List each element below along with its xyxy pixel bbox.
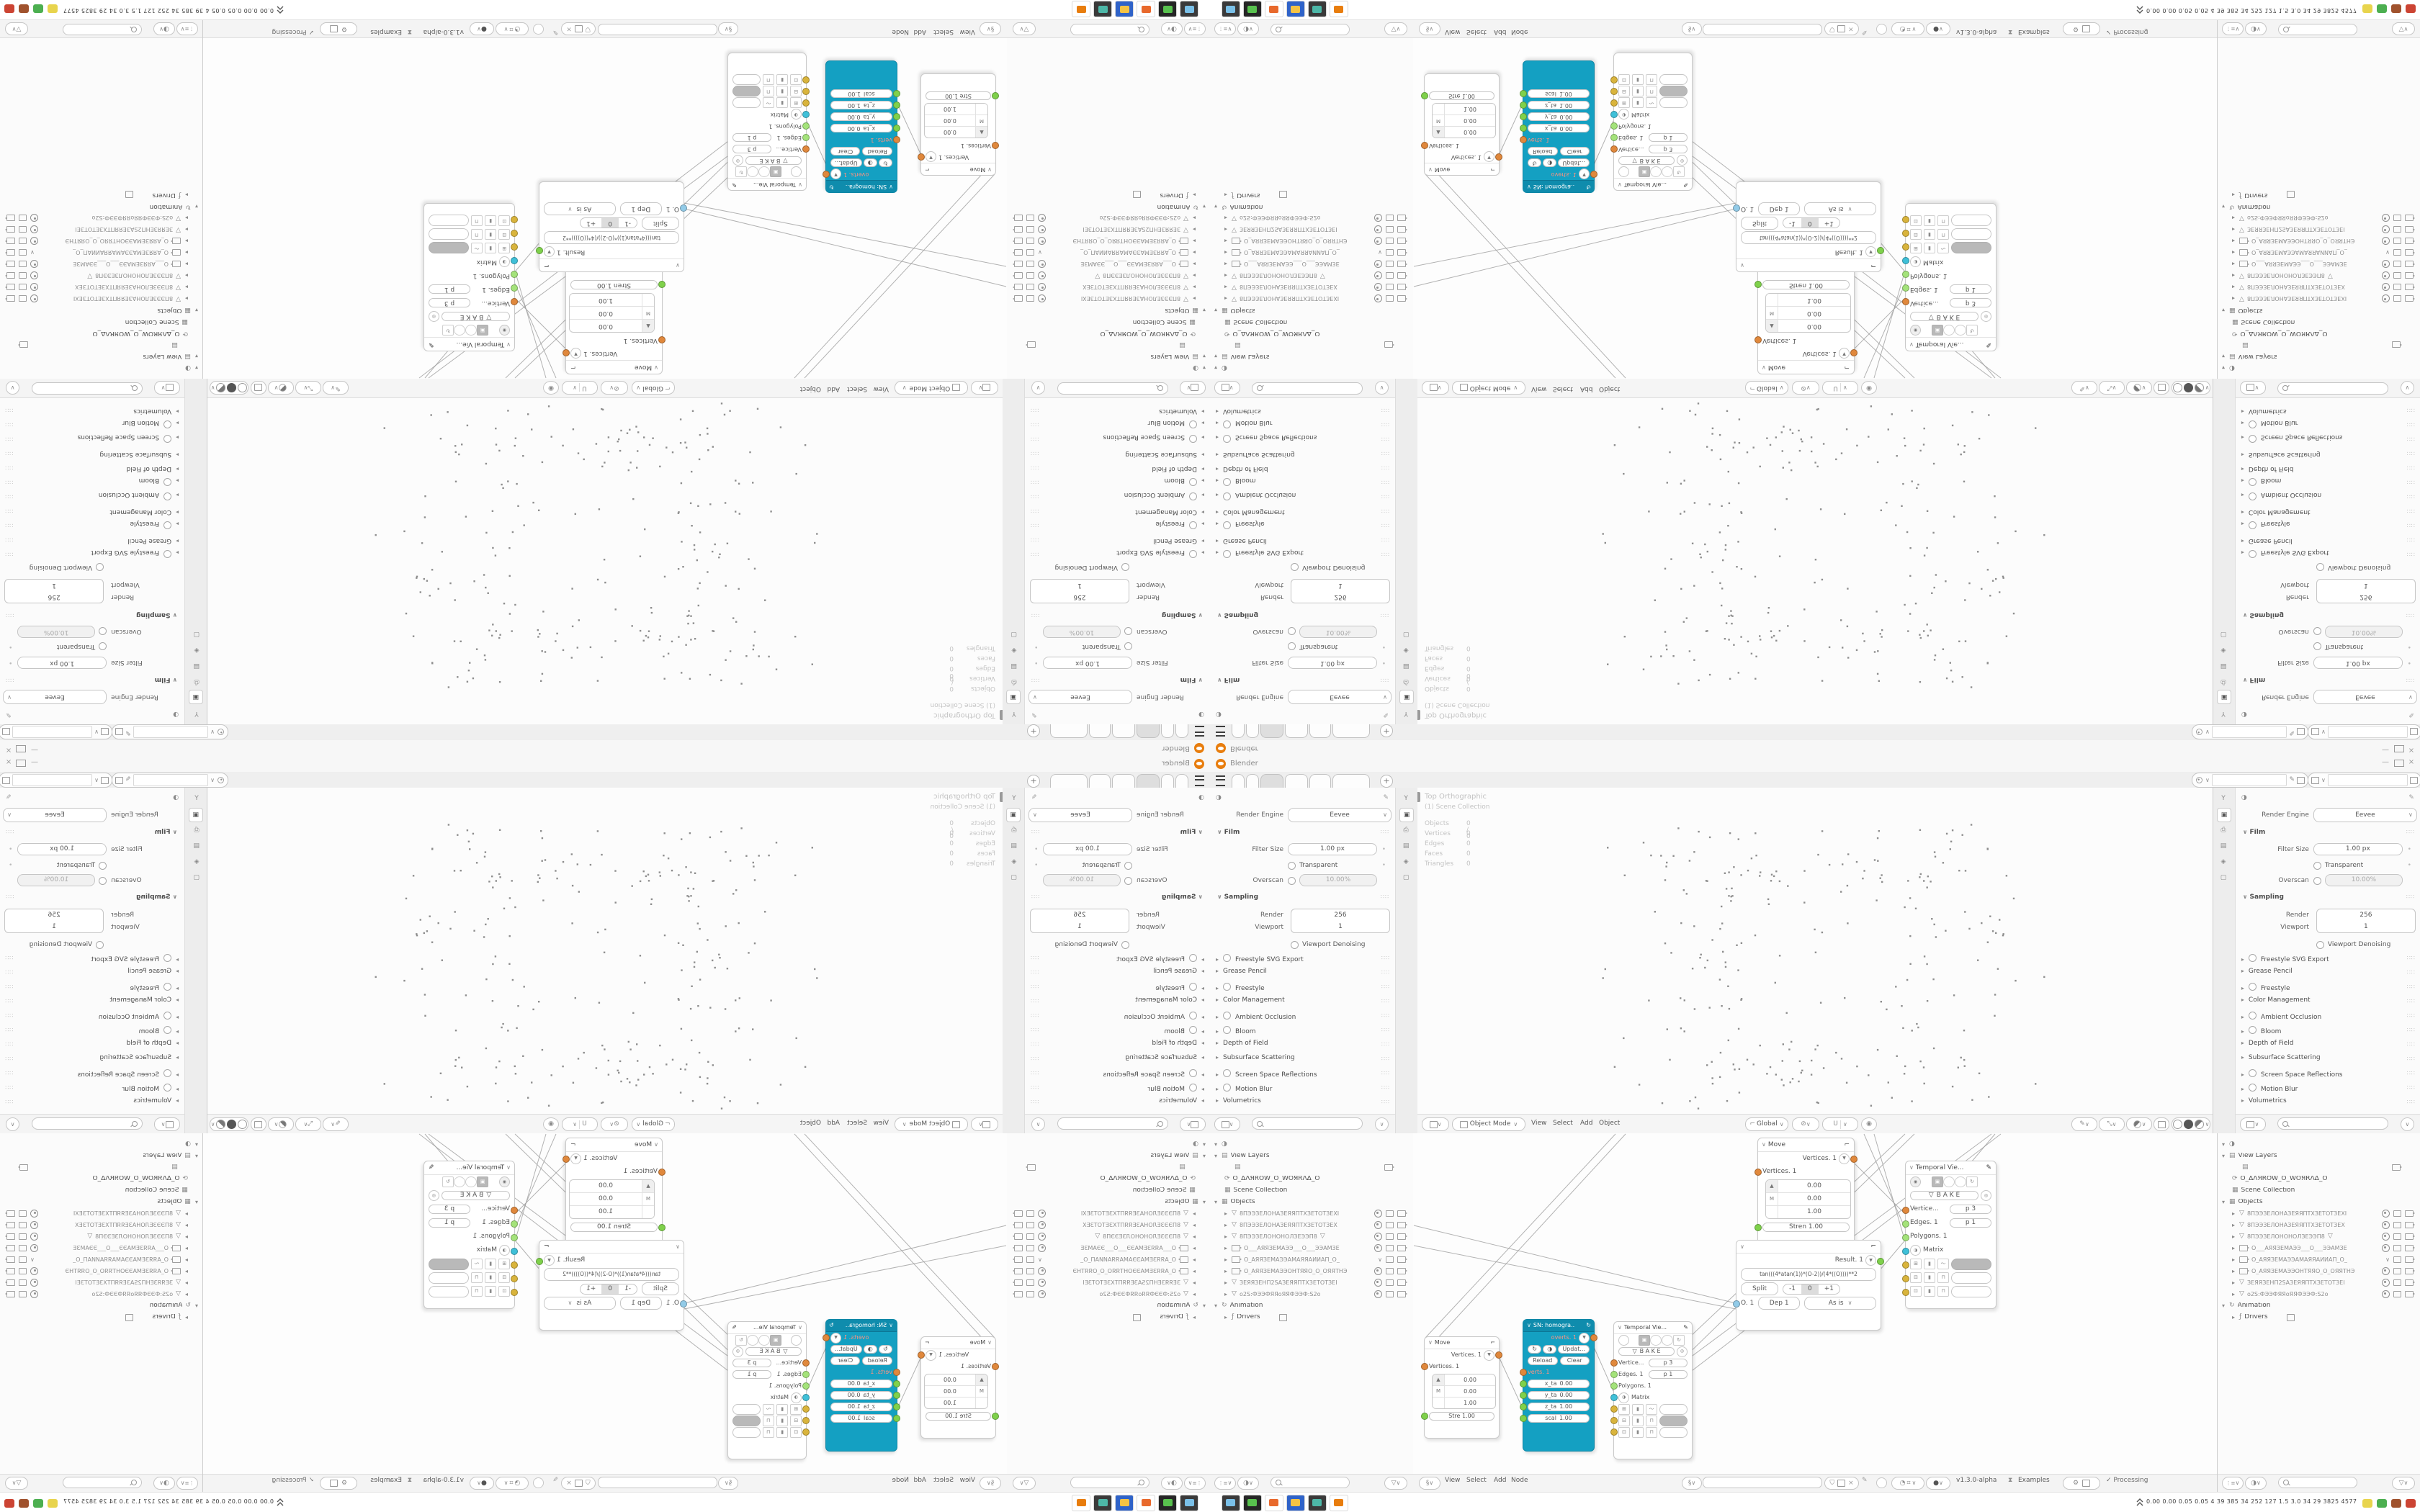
filter-size-field[interactable]: 1.00 px xyxy=(1043,843,1132,855)
outliner-objects-collection[interactable]: ▾▦Objects xyxy=(1007,305,1210,315)
render-disable-toggle[interactable] xyxy=(2405,1279,2414,1286)
outliner-scene[interactable]: ⟳O_ΔΛЯROW_O_WOЯRΛΔ_O xyxy=(2218,328,2420,338)
section-checkbox[interactable] xyxy=(163,1026,171,1034)
matrix-widget[interactable]: ▲0.00 M0.00 1.00 xyxy=(569,293,655,333)
render-disable-toggle[interactable] xyxy=(6,1233,15,1240)
section-checkbox[interactable] xyxy=(1189,435,1197,443)
viewport-disable-toggle[interactable] xyxy=(2393,1245,2401,1251)
viewport-disable-toggle[interactable] xyxy=(1386,1210,1394,1217)
rebake-button[interactable]: ◎ xyxy=(1981,1190,1991,1201)
viewport-disable-toggle[interactable] xyxy=(1026,1256,1034,1263)
render-disable-toggle[interactable] xyxy=(2405,1268,2414,1274)
taskbar-app-icon[interactable] xyxy=(2406,4,2416,13)
node-sn-homogra[interactable]: ∨SN: homogra..↻ overts. 1▼ ↻ ◑ Updat... … xyxy=(1523,1319,1595,1452)
workspace-tab[interactable] xyxy=(1089,774,1111,788)
overscan-field[interactable]: 10.00% xyxy=(2325,874,2403,886)
edit-icon-button[interactable]: ◑ xyxy=(1543,158,1556,167)
properties-tab-icon[interactable]: ▣ xyxy=(1399,690,1414,704)
viewport-disable-toggle[interactable] xyxy=(1386,272,1394,279)
hide-toggle[interactable] xyxy=(1038,283,1046,291)
id-browser-1[interactable]: ∨ ✎ xyxy=(112,724,228,739)
properties-tab-icon[interactable]: ▢ xyxy=(2217,871,2230,884)
outliner-object-row[interactable]: ▸▽ЗЕЯЯЗЕНП2SАЗЕЯЯПТХЗЕТОТЗЕІ xyxy=(0,224,202,235)
render-disable-toggle[interactable] xyxy=(1014,1233,1023,1240)
viewport-disable-toggle[interactable] xyxy=(19,1256,27,1263)
split-depth-segment[interactable]: -10+1 xyxy=(580,1284,637,1295)
outliner-object-row[interactable]: ▸▽ЗЕЯЯЗЕНП2SАЗЕЯЯПТХЗЕТОТЗЕІ xyxy=(0,1277,202,1288)
outliner-object-row[interactable]: ▸О___АЯЯЗЕМАЭЭ___О___ЭЭАМЗЕ xyxy=(2218,258,2420,269)
props-collapsed-section[interactable]: ▸Subsurface Scattering∷∷ xyxy=(1024,444,1210,457)
reload-button[interactable]: Reload xyxy=(863,147,893,156)
proportional-edit-button[interactable]: ◉ xyxy=(543,1117,559,1131)
render-disable-toggle[interactable] xyxy=(6,249,15,256)
hide-toggle[interactable] xyxy=(1038,214,1046,222)
section-checkbox[interactable] xyxy=(1189,550,1197,558)
section-checkbox[interactable] xyxy=(1223,954,1231,962)
sverchok-buttons[interactable]: ⚙ xyxy=(320,22,357,35)
id-browser-2[interactable]: ∨ xyxy=(0,724,112,739)
hide-toggle[interactable] xyxy=(30,1267,38,1275)
hide-toggle[interactable] xyxy=(2382,294,2390,302)
filter-size-field[interactable]: 1.00 px xyxy=(2313,657,2403,669)
section-checkbox[interactable] xyxy=(1223,1084,1231,1092)
viewport-disable-toggle[interactable] xyxy=(2393,1233,2401,1240)
render-disable-toggle[interactable] xyxy=(1397,1210,1406,1217)
filter-id-button[interactable]: ◑∨ xyxy=(2245,22,2267,35)
render-disable-toggle[interactable] xyxy=(2405,1245,2414,1251)
outliner-object-row[interactable]: ▸О_АЯЯЗЕМАЭЭОНТЯЯО_О_ОЯЯТНЭ xyxy=(1210,1266,1413,1277)
display-toggle-group[interactable]: ▣↻ xyxy=(735,167,781,178)
overscan-checkbox[interactable] xyxy=(99,877,107,885)
outliner-objects-collection[interactable]: ▾▦Objects xyxy=(1210,1197,1413,1207)
hide-toggle[interactable]: ∨ xyxy=(2385,1257,2390,1263)
hide-toggle[interactable] xyxy=(2382,1233,2390,1241)
sampling-section-header[interactable]: ∨ Sampling xyxy=(136,611,177,618)
props-collapsed-section[interactable]: ▸Volumetrics∷∷ xyxy=(0,401,184,414)
viewport-disable-toggle[interactable] xyxy=(1026,1210,1034,1217)
overlays-toggle-button[interactable]: ∨ xyxy=(2126,381,2152,395)
denoising-checkbox[interactable] xyxy=(1121,564,1129,572)
rebake-button[interactable]: ◎ xyxy=(732,156,743,166)
outliner-object-row[interactable]: ▸▽8ПЭЭЗЕЛОНАЗЕЯЯПТХЗЕТОТЗЕХІ xyxy=(1007,1208,1210,1219)
properties-tab-icon[interactable]: Y xyxy=(1008,792,1021,805)
outliner-filter-button[interactable]: ▽∨ xyxy=(1384,22,1407,35)
hide-toggle[interactable] xyxy=(2382,1279,2390,1287)
hide-toggle[interactable] xyxy=(1038,237,1046,245)
shading-mode-group[interactable]: ∨ xyxy=(2172,1117,2210,1131)
outliner-scene[interactable]: ⟳O_ΔΛЯROW_O_WOЯRΛΔ_O xyxy=(2218,1174,2420,1184)
taskbar-app-icon[interactable] xyxy=(33,4,43,13)
props-collapsed-section[interactable]: ▸Motion Blur∷∷ xyxy=(0,415,184,428)
hide-toggle[interactable] xyxy=(30,1290,38,1298)
node-tree-name-field[interactable] xyxy=(1703,24,1822,35)
gimp-64-icon[interactable] xyxy=(1115,1495,1134,1511)
render-disable-toggle[interactable] xyxy=(6,238,15,244)
sampling-render-field[interactable]: 256 xyxy=(1291,590,1390,603)
node-temporal-viewer[interactable]: ∨Temporal Vie...✎ ◉ ▣↻ ▽B A K E◎ Vertice… xyxy=(1905,1161,1996,1309)
transparent-checkbox[interactable] xyxy=(99,862,107,870)
outliner-filter-button[interactable]: ▽∨ xyxy=(1013,1477,1036,1490)
viewport-disable-toggle[interactable] xyxy=(19,1210,27,1217)
render-engine-dropdown[interactable]: Eevee∨ xyxy=(1028,808,1132,822)
node-temporal-viewer[interactable]: ∨Temporal Vie...✎ ▣↻ ▽B A K E◎ Vertice..… xyxy=(727,53,807,191)
viewport-disable-toggle[interactable] xyxy=(1386,1291,1394,1297)
shading-mode-group[interactable]: ∨ xyxy=(210,381,248,395)
render-disable-toggle[interactable] xyxy=(1397,238,1406,244)
hide-toggle[interactable] xyxy=(30,1210,38,1218)
matrix-out-row[interactable]: ⊟▮⊓ xyxy=(728,86,806,97)
props-collapsed-section[interactable]: ▸Grease Pencil∷∷ xyxy=(0,531,184,544)
render-disable-toggle[interactable] xyxy=(1014,1268,1023,1274)
props-collapsed-section[interactable]: ▸Ambient Occlusion∷∷ xyxy=(2236,487,2420,500)
editor-type-button[interactable]: ∨ xyxy=(1422,381,1449,395)
node-move[interactable]: ∨Move⌐ Vertices. 1▼ Vertices. 1 ▲0.00 M0… xyxy=(1424,1336,1500,1439)
overscan-field[interactable]: 10.00% xyxy=(1299,874,1377,886)
eye-toggle[interactable]: ◉ xyxy=(1910,325,1921,336)
viewport-disable-toggle[interactable] xyxy=(19,238,27,244)
hide-toggle[interactable] xyxy=(1374,294,1382,302)
copy-icon[interactable] xyxy=(115,777,123,784)
outliner-object-row[interactable]: ▸О_АЯЯЗЕМАЭЭАМАЯЯАИИАП_О_∨ xyxy=(0,247,202,258)
props-collapsed-section[interactable]: ▸Freestyle SVG Export∷∷ xyxy=(1024,954,1210,967)
id-name-field[interactable] xyxy=(2212,774,2287,786)
editor-type-button[interactable]: §∨ xyxy=(1419,1477,1440,1490)
outliner-search-input[interactable] xyxy=(1270,1477,1350,1488)
hide-toggle[interactable]: ∨ xyxy=(1378,1257,1382,1263)
section-checkbox[interactable] xyxy=(1223,435,1231,443)
properties-tab-icon[interactable]: ▤ xyxy=(1008,840,1021,852)
menu-view[interactable]: View xyxy=(1445,1477,1460,1484)
node-editor[interactable]: ∨Move⌐ Vertices. 1▼ Vertices. 1 ▲0.00 M0… xyxy=(203,1133,1007,1492)
properties-tab-icon[interactable]: ◈ xyxy=(1399,644,1412,657)
gizmo-toggle-button[interactable]: ⤡∨ xyxy=(2099,1117,2125,1131)
id-name-field[interactable] xyxy=(2212,726,2287,738)
outliner-drivers[interactable]: ▸ƒDrivers xyxy=(1007,189,1210,200)
annotate-tool-button[interactable]: ✎∨ xyxy=(2071,381,2097,395)
sampling-section-header[interactable]: ∨ Sampling xyxy=(1217,611,1258,618)
hide-toggle[interactable] xyxy=(1038,1279,1046,1287)
props-search-input[interactable] xyxy=(2277,1117,2388,1130)
outliner-view-layers[interactable]: ▾▤ View Layers xyxy=(0,1151,202,1161)
section-checkbox[interactable] xyxy=(2249,550,2257,558)
blender-icon[interactable] xyxy=(1330,1495,1348,1511)
pin-icon[interactable]: ✎ xyxy=(1031,795,1037,801)
props-collapsed-section[interactable]: ▸Screen Space Reflections∷∷ xyxy=(0,1069,184,1082)
gizmo-pref-button[interactable]: ◔⌗∨ xyxy=(496,1477,529,1490)
props-options-button[interactable]: ∨ xyxy=(1031,381,1045,395)
bake-icon-button[interactable]: ↻ xyxy=(1528,158,1541,167)
filter-id-button[interactable]: ◑∨ xyxy=(153,1477,175,1490)
xray-toggle-button[interactable] xyxy=(251,1117,266,1131)
copy-icon[interactable] xyxy=(2,729,10,736)
denoising-checkbox[interactable] xyxy=(1121,941,1129,949)
outliner-filter-button[interactable]: ▽∨ xyxy=(2392,22,2415,35)
render-disable-toggle[interactable] xyxy=(1014,272,1023,279)
firefox-icon[interactable] xyxy=(1137,1495,1155,1511)
section-checkbox[interactable] xyxy=(1223,1012,1231,1020)
outliner-objects-collection[interactable]: ▾▦Objects xyxy=(2218,305,2420,315)
outliner-object-row[interactable]: ▸▽о2S:ФЭЭФЯЯоЯЯФЭЭФ:S2о xyxy=(2218,212,2420,223)
viewport-disable-toggle[interactable] xyxy=(19,284,27,290)
section-checkbox[interactable] xyxy=(163,550,171,558)
props-collapsed-section[interactable]: ▸Depth of Field∷∷ xyxy=(0,459,184,472)
menu-add[interactable]: Add xyxy=(914,28,926,35)
taskbar-app-icon[interactable] xyxy=(4,4,14,13)
section-checkbox[interactable] xyxy=(163,435,171,443)
viewport-3d[interactable]: Top Orthographic (1) Scene Collection Ob… xyxy=(1417,788,2213,1133)
denoising-checkbox[interactable] xyxy=(96,564,104,572)
render-engine-dropdown[interactable]: Eevee∨ xyxy=(1288,808,1391,822)
bake-button[interactable]: ▽B A K E xyxy=(1910,1191,1978,1200)
taskbar-app-icon[interactable] xyxy=(2362,1499,2372,1508)
gimp-64-icon[interactable] xyxy=(1286,1,1305,17)
hide-toggle[interactable] xyxy=(1038,1210,1046,1218)
update-button[interactable]: Updat... xyxy=(830,158,862,167)
props-options-button[interactable]: ∨ xyxy=(1375,381,1389,395)
overscan-checkbox[interactable] xyxy=(1124,877,1132,885)
outliner-view-layers[interactable]: ▾▤ View Layers xyxy=(1210,351,1413,361)
id-name-field[interactable] xyxy=(133,726,209,738)
eye-toggle[interactable]: ◉ xyxy=(1910,1176,1921,1187)
props-collapsed-section[interactable]: ▸Freestyle∷∷ xyxy=(0,516,184,529)
editor-type-button[interactable]: ∨ xyxy=(2240,381,2266,395)
section-checkbox[interactable] xyxy=(1223,1069,1231,1077)
outliner-objects-collection[interactable]: ▾▦Objects xyxy=(0,305,202,315)
workspace-tab[interactable] xyxy=(1232,724,1245,738)
workspace-tab[interactable] xyxy=(1161,774,1174,788)
editor-type-button[interactable]: §∨ xyxy=(980,22,1001,35)
outliner-object-row[interactable]: ▸О_АЯЯЗЕМАЭЭОНТЯЯО_О_ОЯЯТНЭ xyxy=(2218,1266,2420,1277)
add-workspace-button[interactable]: + xyxy=(1380,775,1393,788)
menu-hamburger-icon[interactable] xyxy=(1195,775,1204,786)
matrix-widget[interactable]: ▲0.00 M0.00 1.00 xyxy=(1432,1374,1496,1409)
eye-toggle[interactable] xyxy=(1618,167,1629,178)
outliner-animation[interactable]: ▾↻Animation xyxy=(2218,1300,2420,1311)
shading-pref-button[interactable]: ●∨ xyxy=(1926,1477,1950,1490)
shading-mode-group[interactable]: ∨ xyxy=(210,1117,248,1131)
section-checkbox[interactable] xyxy=(2249,420,2257,428)
props-collapsed-section[interactable]: ▸Ambient Occlusion∷∷ xyxy=(1024,1012,1210,1025)
annotate-tool-button[interactable]: ✎∨ xyxy=(323,381,349,395)
menu-hamburger-icon[interactable] xyxy=(1195,726,1204,737)
reload-button[interactable]: Reload xyxy=(863,1356,893,1365)
outliner-object-row[interactable]: ▸О_АЯЯЗЕМАЭЭОНТЯЯО_О_ОЯЯТНЭ xyxy=(0,235,202,246)
taskbar-app-icon[interactable] xyxy=(4,1499,14,1508)
viewport-disable-toggle[interactable] xyxy=(2393,1291,2401,1297)
props-collapsed-section[interactable]: ▸Ambient Occlusion∷∷ xyxy=(1210,1012,1396,1025)
props-collapsed-section[interactable]: ▸Motion Blur∷∷ xyxy=(1210,415,1396,428)
proportional-edit-button[interactable]: ◉ xyxy=(1861,1117,1877,1131)
section-checkbox[interactable] xyxy=(1223,983,1231,991)
overscan-checkbox[interactable] xyxy=(2313,877,2321,885)
properties-tab-icon[interactable]: ◈ xyxy=(2217,855,2230,868)
outliner-object-row[interactable]: ▸О___АЯЯЗЕМАЭЭ___О___ЭЭАМЗЕ xyxy=(0,258,202,269)
outliner-drivers[interactable]: ▸ƒDrivers xyxy=(1210,1312,1413,1323)
viewport-disable-toggle[interactable] xyxy=(19,1268,27,1274)
firefox-icon[interactable] xyxy=(1137,1,1155,17)
outliner-view-layer-item[interactable]: ▤ xyxy=(1210,339,1413,350)
properties-tab-icon[interactable]: ◈ xyxy=(1399,855,1412,868)
overscan-checkbox[interactable] xyxy=(1124,628,1132,636)
film-section-header[interactable]: ∨ Film xyxy=(155,829,177,836)
menu-select[interactable]: Select xyxy=(1466,1477,1487,1484)
rebake-button[interactable]: ◎ xyxy=(429,1190,439,1201)
viewport-disable-toggle[interactable] xyxy=(1386,226,1394,233)
render-disable-toggle[interactable] xyxy=(1014,295,1023,302)
properties-tab-icon[interactable]: ⎙ xyxy=(1399,675,1412,688)
viewport-disable-toggle[interactable] xyxy=(19,215,27,221)
split-button[interactable]: Split xyxy=(1741,217,1778,230)
section-checkbox[interactable] xyxy=(1189,492,1197,500)
display-mode-button[interactable]: ⋮≡∨ xyxy=(2222,1477,2244,1490)
viewport-disable-toggle[interactable] xyxy=(1026,1291,1034,1297)
properties-tab-icon[interactable]: ▢ xyxy=(190,871,203,884)
properties-tab-icon[interactable]: ▢ xyxy=(1399,628,1412,641)
sampling-viewport-field[interactable]: 1 xyxy=(4,579,104,591)
properties-tab-icon[interactable]: ▣ xyxy=(2217,808,2231,822)
pin-icon[interactable]: ✎ xyxy=(6,795,12,801)
hide-toggle[interactable] xyxy=(1374,225,1382,233)
matrix-out-row[interactable]: ⊡▮⊓ xyxy=(728,1426,806,1438)
blender-icon[interactable] xyxy=(1072,1,1090,17)
filter-size-field[interactable]: 1.00 px xyxy=(1288,657,1377,669)
hide-toggle[interactable] xyxy=(1374,1244,1382,1252)
outliner-scene-collection[interactable]: ▦Scene Collection xyxy=(2218,1185,2420,1196)
viewport-disable-toggle[interactable] xyxy=(2393,261,2401,267)
filter-size-field[interactable]: 1.00 px xyxy=(17,657,107,669)
xray-toggle-button[interactable] xyxy=(2154,1117,2169,1131)
hide-toggle[interactable] xyxy=(2382,1210,2390,1218)
pin-icon[interactable]: ✎ xyxy=(552,28,558,35)
props-search-input[interactable] xyxy=(2277,382,2388,395)
props-collapsed-section[interactable]: ▸Screen Space Reflections∷∷ xyxy=(1024,430,1210,443)
node-temporal-viewer[interactable]: ∨Temporal Vie...✎ ◉ ▣↻ ▽B A K E◎ Vertice… xyxy=(423,203,515,351)
outliner-object-row[interactable]: ▸▽8ПЭЭЗЕЛОНАЗЕЯЯПТХЗЕТОТЗЕХ xyxy=(1007,1220,1210,1230)
filter-id-button[interactable]: ◑∨ xyxy=(1237,1477,1259,1490)
blender-icon[interactable] xyxy=(1072,1495,1090,1511)
menu-view[interactable]: View xyxy=(1531,1120,1546,1133)
editor-type-button[interactable]: §∨ xyxy=(980,1477,1001,1490)
outliner-scene[interactable]: ⟳O_ΔΛЯROW_O_WOЯRΛΔ_O xyxy=(0,328,202,338)
props-options-button[interactable]: ∨ xyxy=(2401,1117,2414,1131)
props-collapsed-section[interactable]: ▸Motion Blur∷∷ xyxy=(1024,415,1210,428)
render-disable-toggle[interactable] xyxy=(1397,1256,1406,1263)
menu-add[interactable]: Add xyxy=(1580,1120,1592,1133)
viewport-disable-toggle[interactable] xyxy=(19,226,27,233)
reload-button[interactable]: Reload xyxy=(1528,147,1558,156)
orientation-dropdown[interactable]: ⌐Global∨ xyxy=(1745,381,1788,395)
outliner-drivers[interactable]: ▸ƒDrivers xyxy=(1210,189,1413,200)
section-checkbox[interactable] xyxy=(163,954,171,962)
props-collapsed-section[interactable]: ▸Grease Pencil∷∷ xyxy=(0,968,184,981)
menu-view[interactable]: View xyxy=(960,1477,975,1484)
render-disable-toggle[interactable] xyxy=(1397,1245,1406,1251)
render-disable-toggle[interactable] xyxy=(1014,261,1023,267)
outliner-objects-collection[interactable]: ▾▦Objects xyxy=(1007,1197,1210,1207)
props-collapsed-section[interactable]: ▸Screen Space Reflections∷∷ xyxy=(1210,430,1396,443)
gizmo-pref-button[interactable]: ◔⌗∨ xyxy=(1891,1477,1924,1490)
node-move[interactable]: ∨Move⌐ Vertices. 1▼ Vertices. 1 ▲0.00 M0… xyxy=(565,268,663,374)
render-disable-toggle[interactable] xyxy=(1014,226,1023,233)
menu-select[interactable]: Select xyxy=(1553,379,1573,392)
viewport-disable-toggle[interactable] xyxy=(2393,238,2401,244)
hide-toggle[interactable] xyxy=(1374,260,1382,268)
hide-toggle[interactable] xyxy=(2382,283,2390,291)
gizmo-toggle-button[interactable]: ⤡∨ xyxy=(2099,381,2125,395)
matrix-out-row[interactable]: ⊞▮〜 xyxy=(424,241,514,255)
matrix-out-row[interactable]: ⊟▮⊓ xyxy=(1614,86,1692,97)
props-collapsed-section[interactable]: ▸Ambient Occlusion∷∷ xyxy=(1210,487,1396,500)
render-disable-toggle[interactable] xyxy=(1397,1291,1406,1297)
props-collapsed-section[interactable]: ▸Motion Blur∷∷ xyxy=(1210,1084,1396,1097)
hide-toggle[interactable]: ∨ xyxy=(2385,250,2390,256)
props-options-button[interactable]: ∨ xyxy=(2401,381,2414,395)
xray-toggle-button[interactable] xyxy=(2154,381,2169,395)
image-viewer-icon[interactable] xyxy=(1308,1,1327,17)
hide-toggle[interactable] xyxy=(1374,1233,1382,1241)
props-collapsed-section[interactable]: ▸Freestyle SVG Export∷∷ xyxy=(0,954,184,967)
viewport-disable-toggle[interactable] xyxy=(2393,226,2401,233)
filter-id-button[interactable]: ◑∨ xyxy=(2245,1477,2267,1490)
node-tree-name-field[interactable] xyxy=(1703,1477,1822,1488)
pin-icon[interactable]: ✎ xyxy=(1383,711,1389,718)
hide-toggle[interactable] xyxy=(1374,283,1382,291)
render-disable-toggle[interactable] xyxy=(2405,238,2414,244)
props-collapsed-section[interactable]: ▸Bloom∷∷ xyxy=(1024,473,1210,486)
viewport-disable-toggle[interactable] xyxy=(1386,261,1394,267)
menu-select[interactable]: Select xyxy=(933,28,954,35)
toolbar-collapse-handle[interactable] xyxy=(1000,792,1003,802)
snippet-buttons[interactable]: ⛉× xyxy=(1824,22,1859,35)
properties-tab-icon[interactable]: ▤ xyxy=(1399,840,1412,852)
id-browser-2[interactable]: ∨ xyxy=(2308,773,2420,788)
bake-button[interactable]: ▽B A K E xyxy=(1618,1347,1675,1356)
outliner-object-row[interactable]: ▸▽8ПЭЭЗЕЛОНАЗЕЯЯПТХЗЕТОТЗЕХ xyxy=(1007,282,1210,292)
node-sn-homogra[interactable]: ∨SN: homogra..↻ overts. 1▼ ↻ ◑ Updat... … xyxy=(1523,60,1595,193)
props-collapsed-section[interactable]: ▸Ambient Occlusion∷∷ xyxy=(0,487,184,500)
node-sn-homogra[interactable]: ∨SN: homogra..↻ overts. 1▼ ↻ ◑ Updat... … xyxy=(825,60,897,193)
workspace-tab[interactable] xyxy=(1137,774,1160,788)
display-mode-button[interactable]: ⋮≡∨ xyxy=(176,1477,198,1490)
hide-toggle[interactable] xyxy=(1038,1267,1046,1275)
orientation-dropdown[interactable]: ⌐Global∨ xyxy=(632,1117,675,1131)
overscan-checkbox[interactable] xyxy=(1288,628,1296,636)
props-collapsed-section[interactable]: ▸Bloom∷∷ xyxy=(1024,1026,1210,1039)
matrix-widget[interactable]: ▲0.00 M0.00 1.00 xyxy=(1765,1179,1851,1219)
minimize-button[interactable]: — xyxy=(30,759,39,769)
render-disable-toggle[interactable] xyxy=(1014,249,1023,256)
section-checkbox[interactable] xyxy=(163,420,171,428)
render-visibility-icon[interactable] xyxy=(2392,341,2401,348)
properties-tab-icon[interactable]: ▣ xyxy=(189,690,203,704)
menu-select[interactable]: Select xyxy=(1553,1120,1573,1133)
hide-toggle[interactable] xyxy=(1038,1290,1046,1298)
display-mode-button[interactable]: ⋮≡∨ xyxy=(1214,1477,1236,1490)
outliner-object-row[interactable]: ▸▽8ПЭЭЗЕЛОНОНОЛЗЕЭЭП8▽ xyxy=(1210,1231,1413,1242)
taskbar-app-icon[interactable] xyxy=(19,4,29,13)
section-checkbox[interactable] xyxy=(163,983,171,991)
node-formula-result[interactable]: ∨⌐ Result. 1▼ tan(((4*atan(1))*(O-2))/(4… xyxy=(1736,1240,1881,1331)
properties-tab-icon[interactable]: Y xyxy=(2217,707,2230,720)
node-move[interactable]: ∨Move⌐ Vertices. 1▼ Vertices. 1 ▲0.00 M0… xyxy=(920,73,996,176)
properties-tab-icon[interactable]: ▢ xyxy=(2217,628,2230,641)
menu-hamburger-icon[interactable] xyxy=(1216,775,1225,786)
matrix-out-row[interactable]: ⊞▮〜 xyxy=(1614,97,1692,109)
viewport-disable-toggle[interactable] xyxy=(1026,1233,1034,1240)
outliner-animation[interactable]: ▾↻Animation xyxy=(1210,1300,1413,1311)
hide-toggle[interactable] xyxy=(1374,214,1382,222)
render-disable-toggle[interactable] xyxy=(6,272,15,279)
